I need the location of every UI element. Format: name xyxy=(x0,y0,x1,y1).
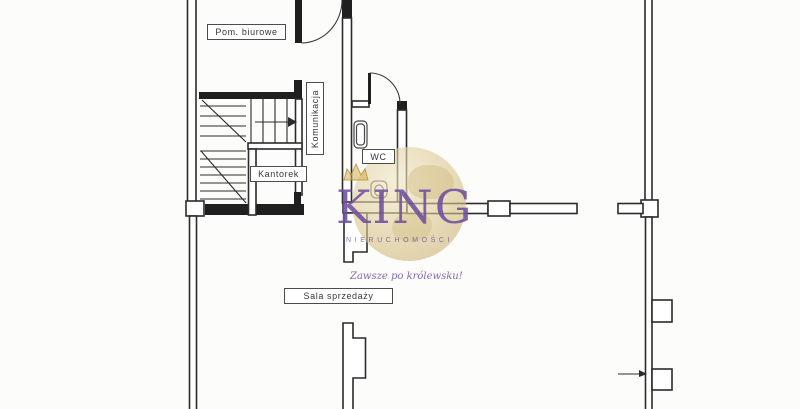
door-leaf-top xyxy=(295,0,302,43)
wall-stair-top xyxy=(199,92,302,99)
wall-wc-left xyxy=(343,18,352,203)
wall-pillar-below-wc xyxy=(344,213,367,262)
floorplan-drawing xyxy=(0,0,800,409)
wall-kantorek-top xyxy=(248,143,302,149)
wall-wc-top xyxy=(352,101,369,107)
wall-wc-bottom xyxy=(343,202,407,213)
room-label-komunikacja-text: Komunikacja xyxy=(310,89,320,147)
wall-jamb-top-door xyxy=(342,0,352,18)
wall-left-upper xyxy=(188,0,197,202)
wall-band-4 xyxy=(618,204,643,214)
wall-band-2 xyxy=(407,204,488,214)
wall-tab-kantorek xyxy=(294,192,301,205)
room-label-pom-biurowe: Pom. biurowe xyxy=(207,24,286,40)
door-arc-wc xyxy=(370,73,401,104)
interior-walls xyxy=(199,0,643,409)
wall-column-left xyxy=(186,201,204,216)
room-label-komunikacja: Komunikacja xyxy=(306,82,324,155)
wall-pilaster-right-2 xyxy=(652,369,672,390)
room-label-sala-sprzedazy: Sala sprzedaży xyxy=(284,288,393,304)
wall-wc-corner xyxy=(397,101,407,110)
wall-pillar-center xyxy=(343,323,366,409)
wall-kantorek-left xyxy=(249,149,257,215)
wall-column-mid xyxy=(488,201,510,216)
wall-right-lower xyxy=(646,217,653,409)
room-label-kantorek: Kantorek xyxy=(250,166,307,182)
wall-band-3 xyxy=(510,204,577,214)
floorplan-canvas: KING NIERUCHOMOŚCI Zawsze po królewsku! … xyxy=(0,0,800,409)
toilet-bowl-icon xyxy=(375,185,384,196)
wall-left-lower xyxy=(190,216,197,409)
door-arc-top xyxy=(302,0,343,43)
wall-pilaster-right-1 xyxy=(652,300,672,322)
door-leaf-wc xyxy=(368,73,371,104)
wall-wc-right xyxy=(398,110,407,203)
room-label-wc: WC xyxy=(362,149,395,164)
sink-basin-icon xyxy=(357,124,365,145)
wall-right-upper xyxy=(645,0,652,201)
